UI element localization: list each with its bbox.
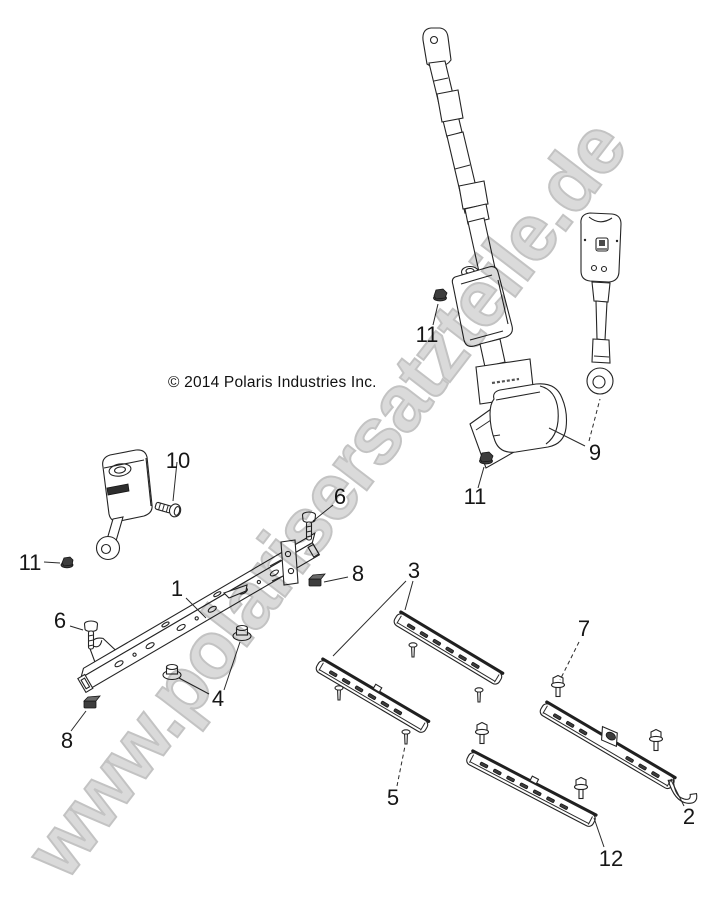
screw-a (409, 643, 417, 657)
callout-1: 1 (171, 576, 183, 601)
nut-4-a (233, 626, 251, 641)
bolt-10 (154, 499, 182, 519)
callout-9: 9 (589, 440, 601, 465)
callout-6-left: 6 (54, 608, 66, 633)
seat-track-rail-3b (314, 654, 432, 734)
parts-diagram-page: 10 11 6 8 1 4 6 8 3 11 11 9 7 5 12 2 © 2… (0, 0, 726, 904)
brand-logo-icon (599, 240, 605, 246)
callout-11-lower: 11 (464, 484, 487, 509)
seat-track-rail-2 (537, 693, 705, 807)
callout-8-right: 8 (352, 561, 364, 586)
bolt-flange-b (476, 723, 489, 744)
copyright-notice: © 2014 Polaris Industries Inc. (168, 374, 377, 392)
bolt-flange-d (575, 778, 588, 799)
exploded-parts-diagram: 10 11 6 8 1 4 6 8 3 11 11 9 7 5 12 2 (0, 0, 726, 904)
callout-12: 12 (599, 846, 623, 871)
bolt-flange-c (650, 730, 663, 751)
callout-11-left: 11 (19, 550, 42, 575)
callout-7: 7 (578, 616, 590, 641)
screw-b (335, 686, 343, 700)
callout-5: 5 (387, 785, 399, 810)
callout-11-mid: 11 (416, 322, 439, 347)
nut-8-right (309, 574, 325, 586)
callout-3: 3 (408, 558, 420, 583)
seat-belt-buckle-left (97, 450, 153, 560)
nut-4-b (163, 665, 181, 680)
seat-track-rail-3a (392, 610, 505, 686)
callout-2: 2 (683, 804, 695, 829)
bolt-7 (552, 676, 565, 697)
callout-8-left: 8 (61, 728, 73, 753)
screw-c (475, 688, 483, 702)
seat-belt-buckle-receiver (581, 213, 621, 394)
screw-5 (402, 730, 410, 744)
nut-8-left (84, 696, 100, 708)
callout-6-right: 6 (334, 484, 346, 509)
nut-11-lower (480, 452, 494, 464)
nut-11-left (61, 557, 73, 568)
callout-4: 4 (212, 686, 224, 711)
seat-belt-retractor-assembly (423, 28, 567, 468)
nut-11-mid (434, 289, 448, 301)
callout-10: 10 (166, 448, 190, 473)
